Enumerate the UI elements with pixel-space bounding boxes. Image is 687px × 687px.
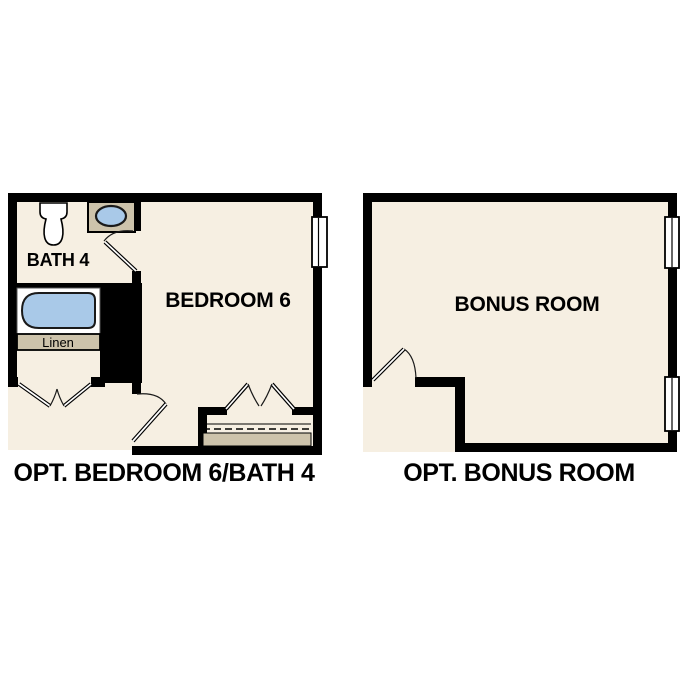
wall-left	[8, 193, 17, 387]
wall-connector	[132, 271, 141, 283]
wall-left	[363, 193, 372, 387]
caption-bedroom6-bath4: OPT. BEDROOM 6/BATH 4	[14, 461, 315, 486]
closet-stub-right	[292, 407, 313, 415]
wall-top	[363, 193, 677, 202]
wall-below-mass	[132, 383, 141, 394]
wall-bottom	[132, 446, 322, 455]
linen-label: Linen	[42, 336, 74, 349]
floorplan-canvas: BATH 4 BEDROOM 6 Linen BONUS ROOM OPT. B…	[0, 0, 687, 687]
plan-bonus-room	[363, 193, 679, 452]
tub-basin	[22, 293, 95, 328]
wall-bottom	[455, 443, 677, 452]
tub-alcove-edge	[17, 283, 100, 288]
vanity-sink-icon	[88, 202, 135, 232]
floorplan-drawing	[0, 0, 687, 687]
sink-basin	[96, 206, 126, 226]
wall-mass-center	[100, 283, 142, 383]
closet-shelf	[203, 433, 311, 446]
room-label-bedroom6: BEDROOM 6	[165, 290, 290, 311]
room-label-bonus: BONUS ROOM	[454, 294, 599, 315]
plan-bedroom6-bath4	[8, 193, 327, 455]
room-label-bath4: BATH 4	[27, 251, 89, 269]
floor-area	[363, 193, 677, 452]
bathtub-icon	[17, 288, 100, 334]
window	[312, 217, 327, 267]
window	[665, 217, 679, 268]
wall-interior-vertical	[455, 377, 465, 452]
window	[665, 377, 679, 431]
closet-stub-left	[198, 407, 227, 415]
wall-stub-left	[8, 377, 18, 387]
wall-top	[8, 193, 322, 202]
caption-bonus-room: OPT. BONUS ROOM	[403, 461, 635, 486]
